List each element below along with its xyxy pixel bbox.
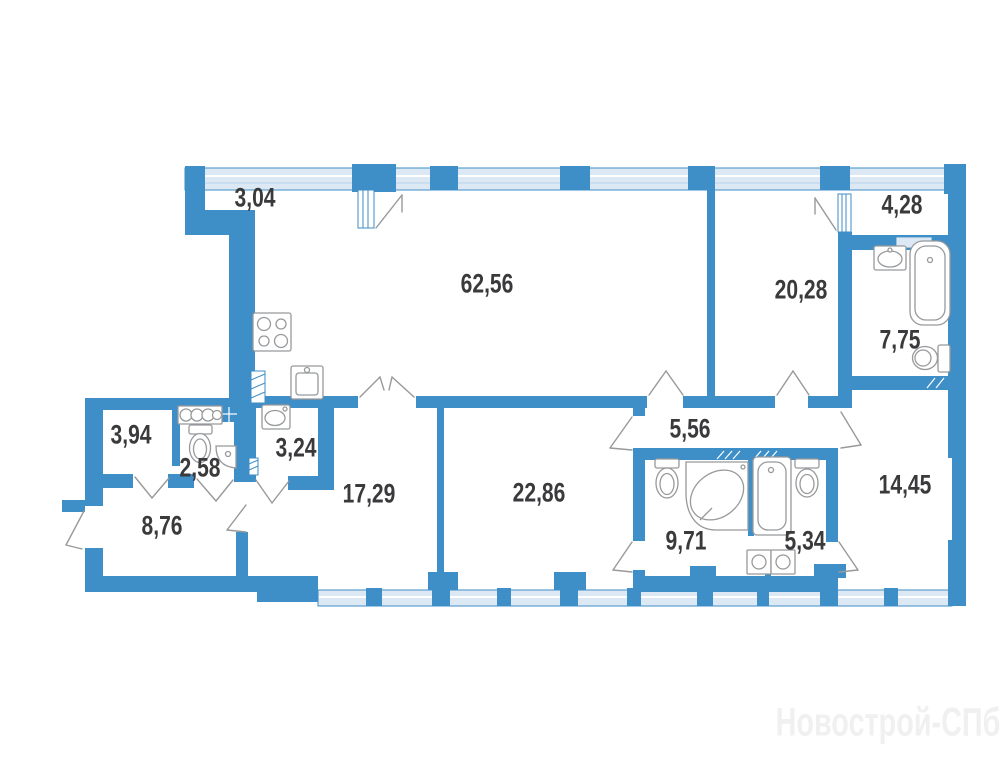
washbasin-icon (874, 246, 906, 270)
balcony-door-window (358, 190, 851, 232)
bathtub-icon (753, 457, 791, 535)
toilet-icon (655, 459, 679, 498)
room-area-label-bedroom-right: 20,28 (775, 275, 828, 306)
room-area-label-utility-left: 3,24 (276, 433, 317, 464)
room-area-label-bathroom-main: 9,71 (666, 526, 707, 557)
corner-jacuzzi-icon (681, 460, 754, 530)
room-area-label-balcony-right: 4,28 (882, 190, 923, 221)
room-area-label-bathroom-top-right: 7,75 (880, 325, 921, 356)
room-area-label-room-southeast: 14,45 (879, 470, 932, 501)
room-area-label-inner-hall: 5,56 (670, 414, 711, 445)
room-area-label-balcony-left: 3,04 (235, 183, 276, 214)
watermark: Новострой-СПб (776, 701, 1001, 746)
floor-plan-drawing (0, 0, 1003, 768)
room-area-label-room-south-center: 22,86 (513, 478, 566, 509)
toilet-icon (795, 459, 819, 497)
room-area-label-wc-left: 2,58 (180, 453, 221, 484)
kitchen-sink-icon (291, 366, 323, 399)
floor-plan: 3,04 62,56 4,28 20,28 7,75 3,94 2,58 3,2… (0, 0, 1003, 768)
room-area-label-living-kitchen: 62,56 (461, 269, 514, 300)
room-area-label-bathroom-small: 5,34 (785, 526, 826, 557)
walls (62, 164, 966, 606)
room-area-label-entry-hall: 8,76 (142, 511, 183, 542)
bathtub-icon (910, 241, 950, 325)
room-area-label-room-southwest: 17,29 (343, 479, 396, 510)
stove-icon (253, 313, 291, 351)
towel-radiator-icon (178, 406, 222, 424)
room-area-label-storage-left: 3,94 (111, 420, 152, 451)
washbasin-icon (262, 405, 290, 429)
